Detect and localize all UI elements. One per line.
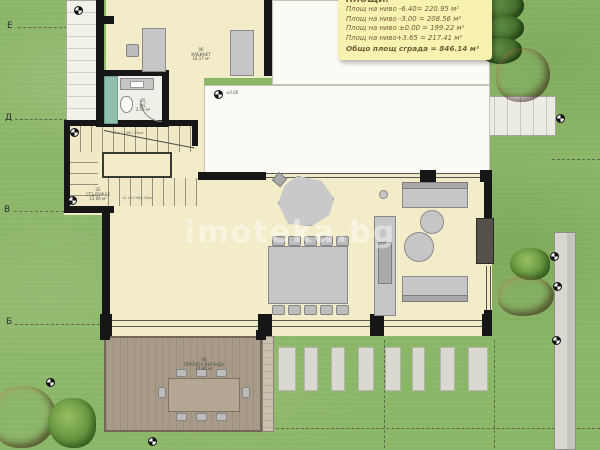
dining-chair [288, 305, 301, 315]
office-area: 16.17 м² [176, 57, 226, 62]
stair-well [102, 152, 172, 178]
deck-post-west [100, 330, 110, 340]
benchmark-icon [550, 252, 559, 261]
void-floor-lower [204, 85, 490, 182]
stepping-stone [412, 347, 425, 391]
benchmark-icon [553, 282, 562, 291]
info-box-line: Площ на ниво+3.65 = 217.41 м² [346, 34, 484, 44]
dining-chair [304, 305, 317, 315]
window-east [486, 266, 491, 314]
sofa-south-back [402, 295, 468, 302]
info-box-line: Площ на ниво ±0.00 = 199.22 м² [346, 24, 484, 34]
veranda-label: 08 ПОКРИТА ВЕРАНДА 27.86 м² [172, 358, 236, 372]
side-table [379, 190, 388, 199]
wc-area: 3.56 м² [128, 108, 158, 113]
grid-label-e: Е [7, 21, 13, 31]
stepping-stone [385, 347, 401, 391]
fireplace [476, 218, 494, 264]
area-info-box: ПЛОЩИ: Площ на ниво -6.40= 220.95 м² Пло… [338, 0, 492, 60]
coffee-table-2 [404, 232, 434, 262]
site-plan-canvas: Е Д В Б 16 x 17.86 / 28см 14 x 17.86 / 2… [0, 0, 600, 450]
info-box-line: Площ на ниво -3.00 = 208.56 м² [346, 15, 484, 25]
outdoor-chair [216, 413, 227, 421]
benchmark-icon [68, 196, 77, 205]
benchmark-icon [148, 437, 157, 446]
stair-dim-bottom: 14 x 17.86 / 28см [122, 196, 153, 200]
stepping-stone [331, 347, 345, 391]
grid-label-b: Б [6, 317, 12, 327]
grid-line-bottom [266, 428, 600, 429]
wall-west-upper [96, 0, 104, 127]
grid-label-d: Д [5, 113, 12, 123]
benchmark-icon [46, 378, 55, 387]
benchmark-icon [214, 90, 223, 99]
dining-chair [320, 305, 333, 315]
benchmark-icon [552, 336, 561, 345]
wall-stair-north [64, 120, 198, 126]
wall-living-north [198, 172, 266, 180]
wall-office-east [264, 0, 272, 76]
wall-pier-south-4 [482, 314, 492, 336]
stepping-stone [468, 347, 488, 391]
benchmark-icon [74, 6, 83, 15]
grid-label-v: В [4, 205, 10, 215]
shower-tray [104, 76, 118, 124]
benchmark-icon [556, 114, 565, 123]
wall-stair-east-stub [192, 120, 198, 146]
window-south-line-1 [104, 320, 492, 321]
dining-chair [272, 305, 285, 315]
path-west [66, 0, 98, 122]
desk [142, 28, 166, 72]
level-badge-text: ±0.00 [226, 91, 238, 96]
stepping-stone [358, 347, 374, 391]
info-box-line: Площ на ниво -6.40= 220.95 м² [346, 5, 484, 15]
outdoor-table [168, 378, 240, 412]
coffee-table-1 [420, 210, 444, 234]
watermark: imoteka.bg [185, 215, 396, 250]
wall-pier-south-3 [370, 314, 384, 336]
veranda-area: 27.86 м² [172, 367, 236, 372]
outdoor-chair [176, 413, 187, 421]
sink [130, 81, 144, 88]
office-label: 06 КАБИНЕТ 16.17 м² [176, 48, 226, 62]
stepping-stone [440, 347, 455, 391]
office-sofa [230, 30, 254, 76]
outdoor-chair [158, 387, 166, 398]
axis-line-vertical-3 [494, 340, 495, 448]
wall-pier-north [420, 170, 436, 182]
sofa-north-back [402, 182, 468, 189]
deck-post-east [256, 330, 266, 340]
outdoor-chair [196, 413, 207, 421]
dining-table [268, 246, 348, 304]
stair-flight-upper [70, 126, 198, 152]
stairs-label: 02 СТЪЛБИЩЕ 12.06 м² [76, 188, 120, 202]
window-north-2 [436, 173, 480, 178]
red-tree [496, 48, 550, 102]
grid-line-d [15, 119, 67, 120]
dining-chair [336, 305, 349, 315]
stepping-stone [278, 347, 296, 391]
grid-line-b [15, 324, 105, 325]
grid-line-v [14, 211, 64, 212]
desk-chair [126, 44, 139, 57]
benchmark-icon [70, 128, 79, 137]
window-north-1 [266, 173, 420, 178]
red-tree [498, 276, 554, 316]
veranda-step-edge [262, 336, 274, 432]
info-box-total: Общо площ сграда = 846.14 м² [346, 43, 484, 54]
wall-wc-east [162, 70, 169, 127]
wall-living-west [102, 206, 110, 318]
stair-dim-top: 16 x 17.86 / 28см [112, 131, 143, 135]
window-south-line-2 [104, 326, 492, 327]
stepping-stone [304, 347, 318, 391]
wall-jog [104, 16, 114, 24]
green-bush [48, 398, 96, 448]
wc-label: 05 WC 3.56 м² [128, 99, 158, 113]
grid-line-right [552, 159, 600, 160]
stairs-area: 12.06 м² [76, 197, 120, 202]
outdoor-chair [242, 387, 250, 398]
